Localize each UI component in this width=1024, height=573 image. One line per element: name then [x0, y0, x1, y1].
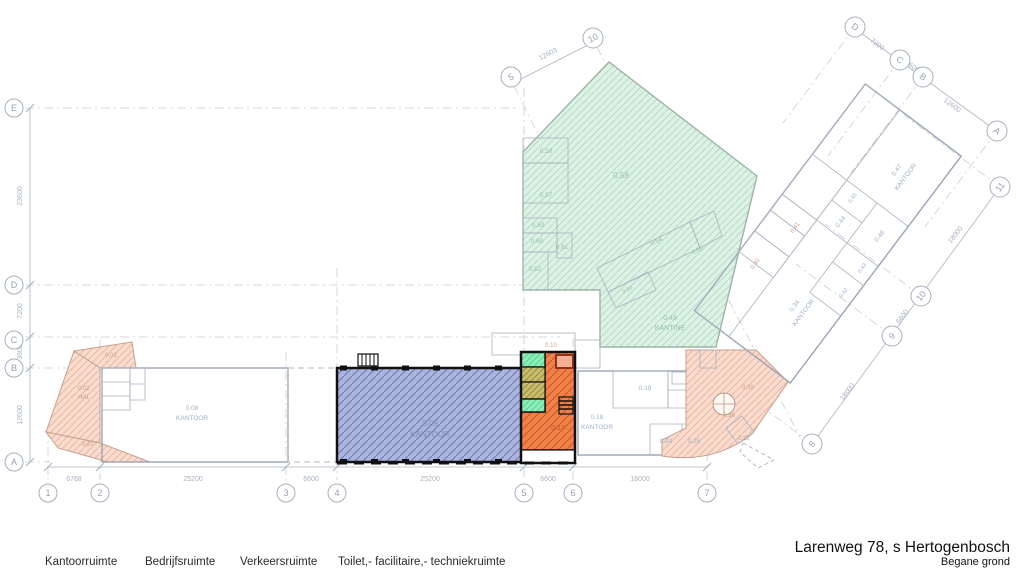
room-label: 0.08 [186, 405, 199, 412]
grid-bubble: 1 [45, 488, 50, 498]
room-label: KANTOOR [410, 430, 450, 439]
dim-label: 6600 [895, 309, 910, 326]
room-label: 0.24 [660, 438, 673, 445]
grid-bubble: D [11, 280, 18, 290]
room-label: 0.19 [639, 385, 652, 392]
highlighted-unit[interactable]: 0.10 0.09 KANTOOR 0.17 [337, 333, 600, 463]
room-label: 0.01 [105, 353, 117, 359]
stairs-icon [358, 354, 378, 366]
room-label: 0.18 [591, 414, 604, 421]
room-label: 0.17 [551, 425, 565, 432]
grid-bubble: A [11, 457, 17, 467]
room-label: 0.39 [742, 385, 754, 391]
room-label: 0.49 [663, 315, 677, 322]
grid-bubble: 6 [570, 488, 575, 498]
room-label: 0.07 [82, 442, 94, 448]
grid-bubble: 4 [334, 488, 339, 498]
floorplan-viewer: 0.01 0.02 HAL 0.07 0.08 KANTOOR 0.56 0.5… [0, 0, 1024, 573]
room-009-kantoor [337, 368, 523, 462]
drawing-subtitle: Begane grond [795, 556, 1010, 569]
room-label: 0.09 [422, 419, 438, 428]
left-wing-faded: 0.01 0.02 HAL 0.07 0.08 KANTOOR [46, 342, 288, 462]
floorplan-drawing: 0.01 0.02 HAL 0.07 0.08 KANTOOR 0.56 0.5… [0, 0, 1024, 573]
facility-room [521, 352, 545, 367]
kantine-region-faded: 0.56 0.57 0.59 0.60 0.61 0.62 0.58 0.54 … [523, 62, 757, 347]
grid-bubble: 5 [521, 488, 526, 498]
room-label: 0.43 [857, 262, 868, 274]
dim-label: 12603 [538, 47, 559, 62]
facility-room [521, 399, 545, 412]
legend-item-kantoorruimte: Kantoorruimte [45, 556, 117, 568]
dim-label: 6600 [540, 476, 556, 483]
room-label: 0.62 [529, 266, 542, 273]
grid-bubble: B [11, 363, 17, 373]
room-label: 0.40 [750, 257, 762, 270]
dim-label: 12600 [17, 405, 24, 425]
technical-room [556, 355, 573, 368]
room-label: 0.60 [531, 238, 544, 245]
room-label: 0.02 [78, 386, 90, 392]
room-label: 0.61 [556, 244, 569, 251]
room-label: 0.22 [738, 436, 750, 442]
room-label: 0.46 [873, 229, 886, 244]
dim-label: 23600 [17, 186, 24, 206]
grid-bubble: 2 [97, 488, 102, 498]
room-label: 0.42 [838, 287, 849, 299]
dim-label: 25200 [420, 476, 440, 483]
grid-bubble: E [11, 103, 17, 113]
center-right-faded: 0.18 KANTOOR 0.19 0.24 0.25 0.39 0.36 0.… [578, 350, 788, 468]
room-label: KANTOOR [176, 415, 208, 422]
dim-label: 7200 [869, 37, 886, 52]
room-label: 0.44 [834, 215, 847, 230]
corridor [521, 450, 575, 463]
grid-bubble: C [11, 335, 18, 345]
room-label: KANTOOR [581, 424, 613, 431]
dim-label: 18000 [947, 225, 964, 245]
drawing-title: Larenweg 78, s Hertogenbosch [795, 539, 1010, 556]
dim-label: 6600 [303, 476, 319, 483]
room-label: 0.59 [532, 222, 545, 229]
legend-item-toilet-facilitaire-techniekruimte: Toilet,- facilitaire,- techniekruimte [338, 556, 505, 568]
title-block: Larenweg 78, s Hertogenbosch Begane gron… [795, 539, 1010, 569]
room-label: 0.45 [847, 192, 858, 204]
room-label: 0.25 [688, 438, 701, 445]
grid-bubble: 3 [283, 488, 288, 498]
room-label: 0.10 [545, 343, 557, 349]
dim-label: 6768 [66, 476, 82, 483]
legend-item-bedrijfsruimte: Bedrijfsruimte [145, 556, 215, 568]
facility-room [521, 367, 545, 382]
dim-label: 18000 [630, 476, 650, 483]
room-label: 0.57 [540, 192, 553, 199]
dim-label: 12600 [942, 97, 962, 114]
dim-label: 7200 [17, 303, 24, 319]
dim-label: 25200 [183, 476, 203, 483]
room-label: HAL [78, 395, 90, 401]
room-label: KANTINE [655, 325, 686, 332]
grid-bubble: 7 [704, 488, 709, 498]
room-label: 0.56 [540, 148, 553, 155]
legend-item-verkeersruimte: Verkeersruimte [240, 556, 317, 568]
dim-label: 18000 [839, 382, 856, 402]
facility-room [521, 382, 545, 399]
room-label: 0.58 [613, 171, 629, 180]
connector-outline [288, 368, 337, 462]
room-label: 0.36 [723, 413, 735, 419]
